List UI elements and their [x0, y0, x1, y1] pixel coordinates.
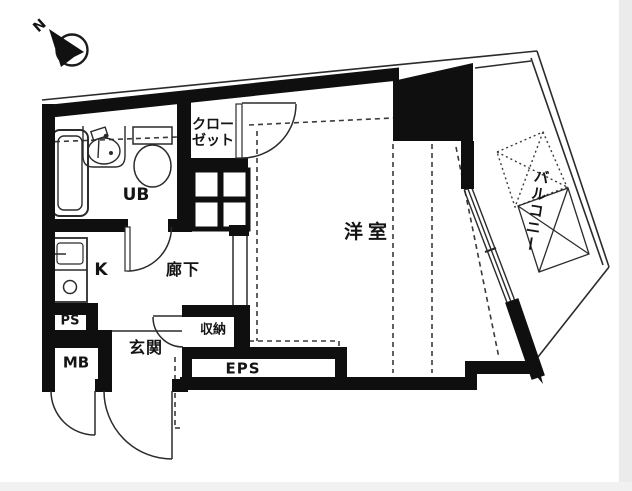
balcony-bottom-line: [538, 267, 609, 357]
wall-top: [42, 68, 399, 119]
bathroom-sink: [83, 126, 125, 167]
screenshot-edge-right: [619, 0, 632, 491]
label-pipe-space: PS: [61, 315, 80, 330]
shaft-cross-square: [193, 170, 248, 229]
balcony-right-outer-line: [537, 51, 609, 267]
stove-burner-icon: [64, 281, 77, 294]
meter-box-door: [51, 391, 95, 435]
closet-door: [236, 104, 296, 158]
entrance-door: [104, 391, 172, 459]
north-compass-icon: [49, 29, 88, 67]
label-entrance: 玄関: [129, 339, 163, 357]
balcony-top-inner-line: [475, 61, 531, 68]
label-closet: クローゼット: [188, 117, 238, 149]
label-storage: 収納: [200, 324, 226, 339]
label-hallway: 廊下: [166, 261, 200, 279]
screenshot-edge-bottom: [0, 482, 632, 491]
label-eps: EPS: [225, 360, 260, 377]
walls: [42, 63, 537, 392]
balcony-sliding-window: [464, 187, 517, 308]
structural-pillar: [393, 63, 473, 141]
faucet-icon: [91, 127, 112, 158]
bathroom-door: [125, 227, 172, 271]
balcony-right-inner-line: [531, 58, 603, 265]
label-western-room: 洋室: [344, 222, 392, 244]
label-kitchen: K: [94, 261, 107, 281]
floor-plan-page: N クローゼット UB K 廊下 PS MB 玄関 収納 EPS 洋室 バルコニ…: [0, 0, 632, 491]
toilet: [133, 127, 172, 187]
label-unit-bath: UB: [123, 186, 150, 206]
label-meter-box: MB: [63, 354, 89, 371]
wall-left: [42, 104, 55, 392]
